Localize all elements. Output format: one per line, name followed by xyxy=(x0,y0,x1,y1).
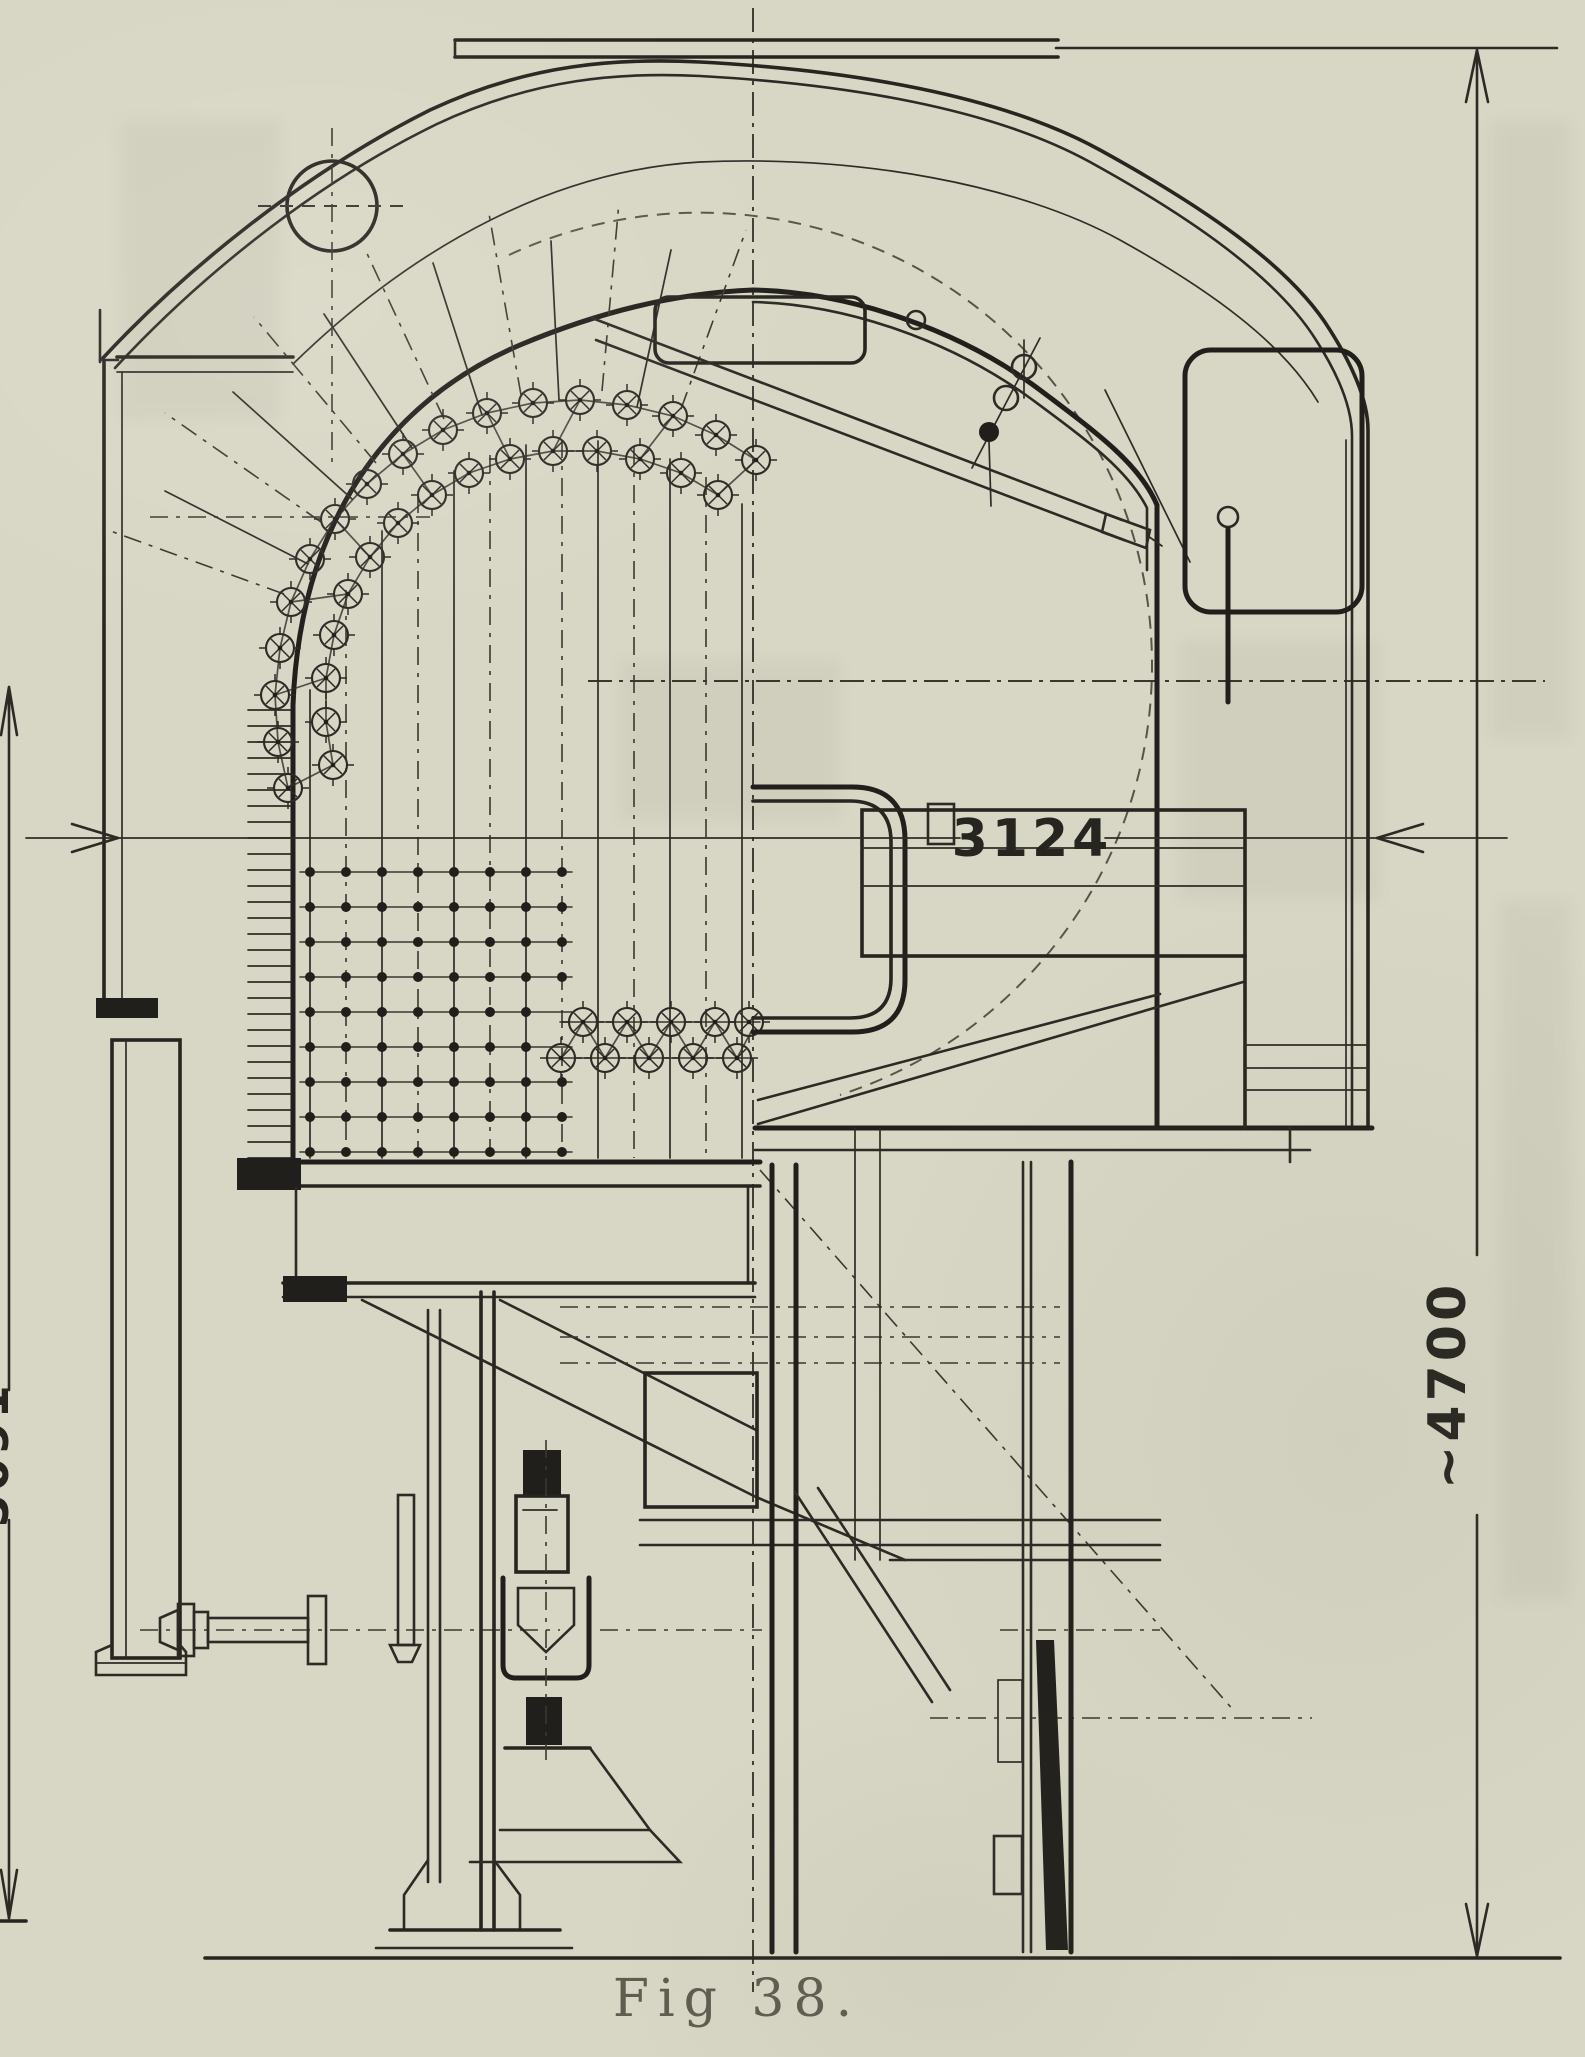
dimension-left: 5091 xyxy=(0,687,26,1921)
wheel xyxy=(994,1162,1071,1952)
spindle-bolt xyxy=(160,1495,420,1664)
dim-left-label: 5091 xyxy=(0,1382,20,1528)
center-lines xyxy=(140,8,1545,1992)
dim-width-label: 3124 xyxy=(952,809,1113,869)
figure-caption: Fig 38. xyxy=(613,1969,861,2029)
dim-height-label: ~4700 xyxy=(1418,1281,1478,1489)
dimension-height-right: ~4700 xyxy=(1418,50,1488,1956)
firebox-door xyxy=(753,787,905,1032)
scanned-page: 5091 3124 ~4700 Fig 38. xyxy=(0,0,1585,2057)
axlebox xyxy=(470,1440,680,1862)
running-gear xyxy=(160,1128,1160,1952)
ventilator-circle xyxy=(258,128,408,470)
stay-hatch-ticks xyxy=(248,710,291,1158)
engineering-drawing-figure: 5091 3124 ~4700 Fig 38. xyxy=(0,0,1585,2057)
